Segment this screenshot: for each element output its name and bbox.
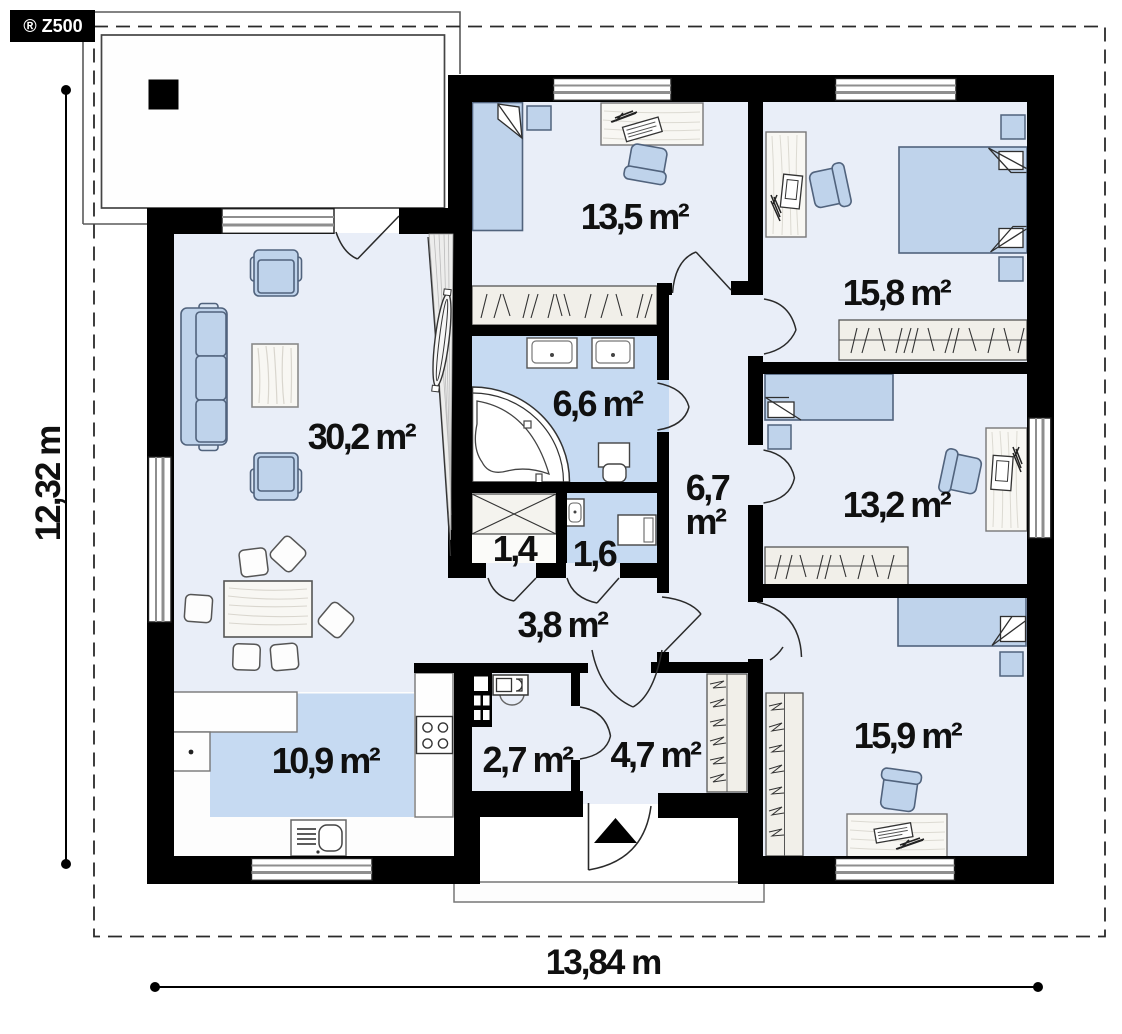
svg-text:13,5 m²: 13,5 m²	[581, 196, 690, 237]
svg-text:15,8 m²: 15,8 m²	[843, 272, 952, 313]
svg-text:13,2 m²: 13,2 m²	[843, 484, 952, 525]
svg-text:2,7 m²: 2,7 m²	[482, 739, 574, 780]
svg-text:13,84 m: 13,84 m	[546, 943, 660, 982]
svg-text:1,6: 1,6	[573, 533, 617, 574]
svg-text:30,2 m²: 30,2 m²	[308, 416, 417, 457]
svg-text:4,7 m²: 4,7 m²	[610, 734, 702, 775]
svg-text:12,32 m: 12,32 m	[29, 427, 68, 541]
svg-text:10,9 m²: 10,9 m²	[272, 740, 381, 781]
svg-text:3,8 m²: 3,8 m²	[517, 604, 609, 645]
svg-text:6,6 m²: 6,6 m²	[552, 383, 644, 424]
svg-text:1,4: 1,4	[493, 528, 538, 569]
svg-text:15,9 m²: 15,9 m²	[854, 715, 963, 756]
svg-text:m²: m²	[686, 501, 728, 542]
svg-text:® Z500: ® Z500	[23, 16, 82, 36]
